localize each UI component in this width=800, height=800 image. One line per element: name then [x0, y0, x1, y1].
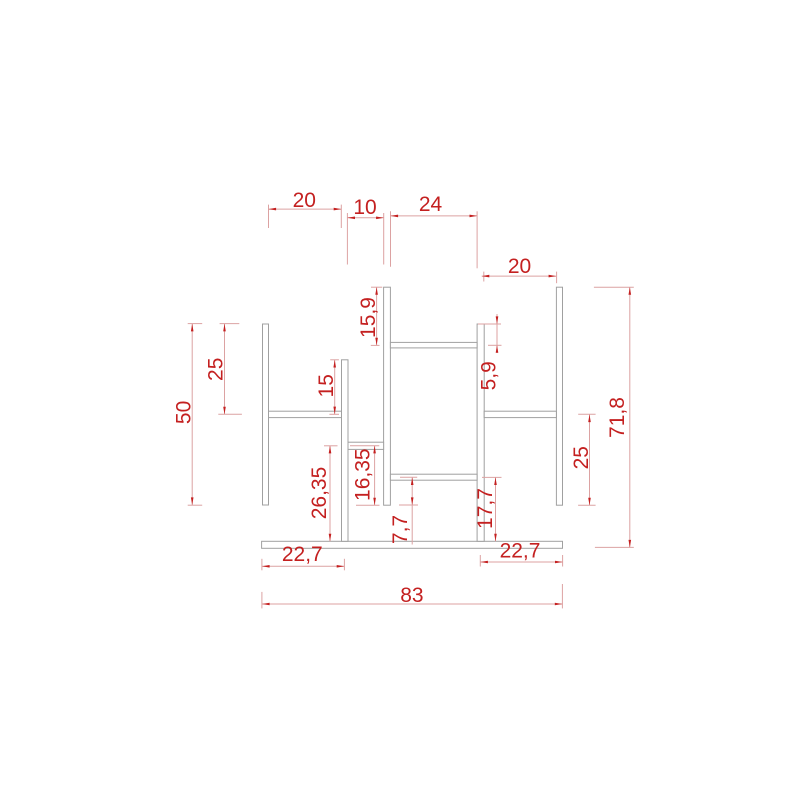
svg-text:15,9: 15,9 — [357, 297, 380, 338]
svg-text:10: 10 — [353, 196, 376, 219]
svg-text:26,35: 26,35 — [308, 467, 331, 520]
svg-text:22,7: 22,7 — [282, 543, 323, 566]
svg-text:17,7: 17,7 — [474, 488, 497, 529]
svg-text:83: 83 — [400, 584, 423, 607]
svg-text:7,7: 7,7 — [389, 515, 412, 544]
svg-text:25: 25 — [205, 358, 228, 381]
svg-text:25: 25 — [570, 446, 593, 469]
svg-text:24: 24 — [419, 193, 443, 216]
svg-text:5,9: 5,9 — [478, 361, 501, 390]
svg-text:50: 50 — [173, 401, 196, 424]
svg-text:71,8: 71,8 — [606, 397, 629, 438]
svg-text:20: 20 — [293, 189, 316, 212]
svg-text:22,7: 22,7 — [500, 539, 541, 562]
svg-text:16,35: 16,35 — [351, 448, 374, 501]
svg-text:15: 15 — [315, 374, 338, 397]
svg-text:20: 20 — [508, 255, 531, 278]
